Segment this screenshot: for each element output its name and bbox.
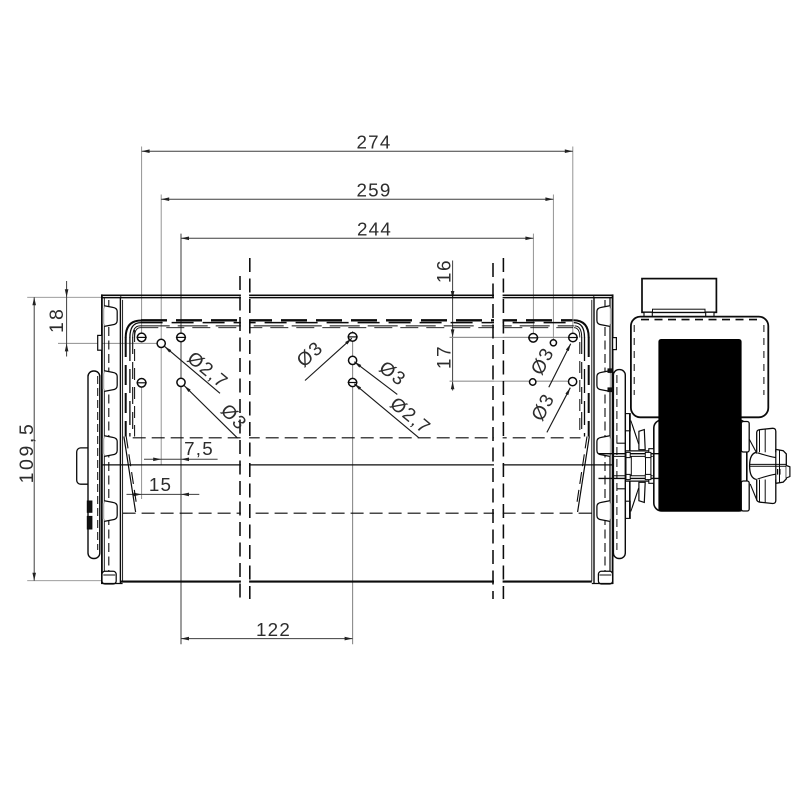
svg-text:259: 259 (357, 180, 392, 201)
svg-text:244: 244 (357, 219, 392, 240)
svg-text:18: 18 (46, 307, 68, 333)
svg-text:109,5: 109,5 (16, 422, 38, 484)
svg-text:17: 17 (435, 345, 456, 369)
svg-text:16: 16 (435, 259, 456, 283)
svg-text:15: 15 (149, 474, 172, 495)
svg-text:122: 122 (256, 619, 291, 640)
svg-text:274: 274 (357, 132, 392, 153)
svg-text:7,5: 7,5 (184, 438, 214, 459)
